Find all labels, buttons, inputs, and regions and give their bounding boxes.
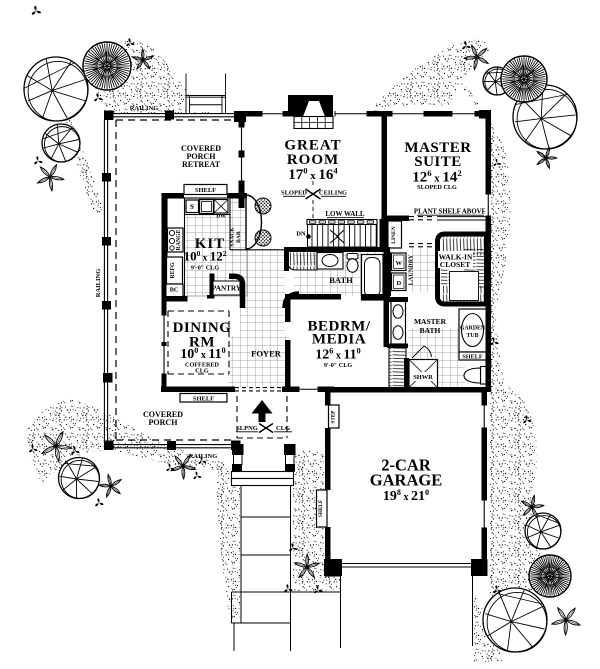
svg-text:SLOPED CLG: SLOPED CLG	[417, 184, 457, 191]
svg-text:SNACK: SNACK	[230, 227, 236, 247]
svg-text:GARDEN: GARDEN	[460, 326, 486, 332]
svg-text:LINEN: LINEN	[391, 226, 397, 243]
svg-text:FOYER: FOYER	[251, 349, 282, 359]
svg-text:PLANT SHELF ABOVE: PLANT SHELF ABOVE	[414, 209, 487, 216]
svg-text:PORCH: PORCH	[149, 418, 179, 427]
svg-text:TUB: TUB	[467, 333, 479, 339]
svg-text:SLOPED: SLOPED	[281, 190, 307, 197]
svg-text:SHWR: SHWR	[413, 374, 433, 381]
svg-text:W: W	[396, 260, 403, 267]
svg-text:CLG: CLG	[195, 368, 209, 375]
svg-text:SHELF: SHELF	[195, 187, 216, 194]
svg-text:D: D	[396, 280, 401, 287]
svg-text:CLG: CLG	[276, 425, 290, 432]
svg-text:RAILING: RAILING	[130, 105, 159, 112]
svg-text:LOW WALL: LOW WALL	[325, 210, 365, 218]
svg-text:REFG: REFG	[170, 262, 176, 279]
svg-text:CEILING: CEILING	[319, 190, 347, 197]
svg-text:DN: DN	[296, 231, 306, 238]
svg-text:GARAGE: GARAGE	[370, 471, 442, 490]
svg-text:BATH: BATH	[420, 326, 441, 335]
svg-text:MASTER: MASTER	[414, 317, 447, 326]
svg-text:BC: BC	[170, 287, 179, 294]
svg-text:SLPNG: SLPNG	[236, 425, 258, 432]
svg-text:RAILING: RAILING	[95, 269, 102, 298]
svg-text:PANTRY: PANTRY	[212, 285, 242, 293]
svg-text:BAR: BAR	[236, 230, 242, 243]
svg-text:RAILING: RAILING	[189, 453, 218, 460]
svg-text:SHELF: SHELF	[193, 395, 214, 402]
svg-text:9′-0″ CLG: 9′-0″ CLG	[324, 362, 353, 369]
svg-text:DW: DW	[216, 214, 226, 220]
svg-text:S: S	[190, 203, 194, 211]
svg-text:SHELF: SHELF	[462, 353, 483, 360]
svg-text:BATH: BATH	[329, 275, 353, 285]
svg-text:9′-0″ CLG: 9′-0″ CLG	[191, 265, 220, 272]
svg-text:RETREAT: RETREAT	[182, 160, 221, 169]
svg-text:LAUNDRY: LAUNDRY	[408, 254, 415, 285]
svg-text:ROOM: ROOM	[287, 152, 339, 168]
svg-text:MEDIA: MEDIA	[312, 332, 366, 348]
svg-text:CLOSET: CLOSET	[440, 260, 470, 269]
svg-text:SUITE: SUITE	[414, 154, 462, 170]
svg-text:STEP: STEP	[331, 410, 337, 424]
svg-text:RANGE: RANGE	[176, 229, 182, 250]
svg-text:SHELF: SHELF	[318, 500, 324, 517]
